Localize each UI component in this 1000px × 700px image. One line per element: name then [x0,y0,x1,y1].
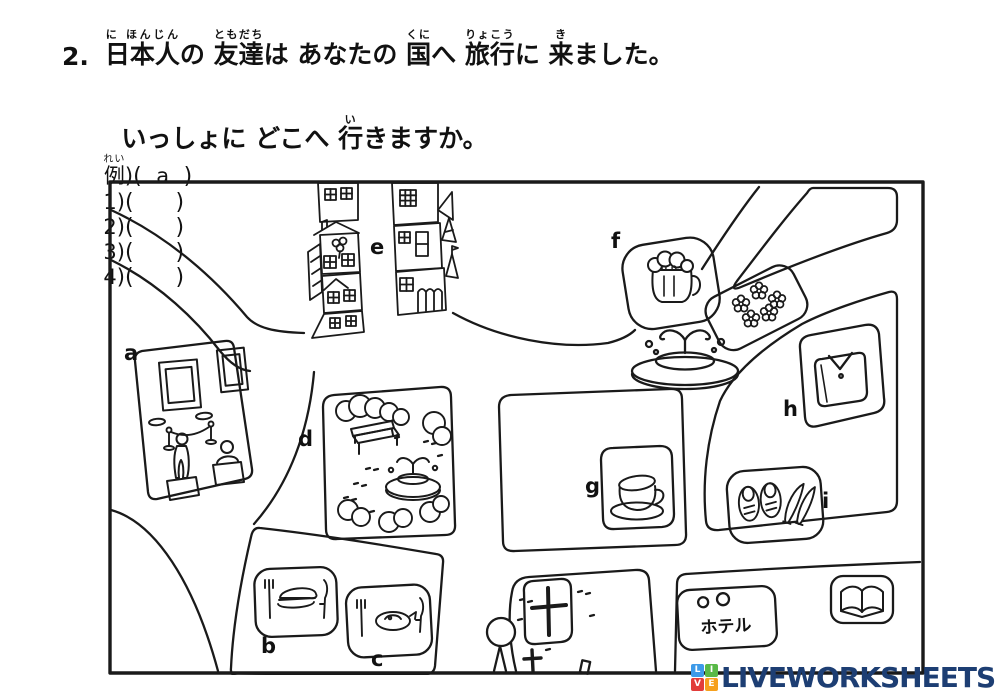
hotel-sign-text: ホテル [700,616,752,639]
shirt-icon [815,353,867,406]
map-block-right [705,292,897,544]
rope-barrier-icon [164,422,216,451]
question-text-1: 日本人に ほんじんの 友達ともだちは あなたの 国くにへ 旅行りょこうに 来きま… [105,28,674,71]
logo-tile-i: I [705,664,718,677]
bench-icon [351,421,399,454]
town-street-buildings [308,183,458,338]
book-icon [841,587,883,617]
fountain-icon [632,330,738,389]
town-map-image: a b c d e f g h i ホテル [108,180,925,675]
logo-tile-v: V [691,678,704,691]
map-label-f: f [611,229,621,253]
burger-plate-icon [265,580,327,618]
map-label-d: d [298,427,313,451]
coffee-cup-icon [611,474,663,520]
liveworksheets-logo[interactable]: L I V E LIVEWORKSHEETS [691,661,995,694]
park-block [323,387,455,539]
clothes-shop-sign [800,325,884,427]
book-shop-sign [831,576,893,623]
map-label-h: h [783,397,798,421]
shoes-icon [738,480,818,529]
question-number: 2. [62,42,89,71]
statue-icon [167,434,244,501]
cafe-sign [601,446,674,529]
bushes-icon [336,395,451,532]
flowers-icon [733,282,786,326]
question-line-1: 2. 日本人に ほんじんの 友達ともだちは あなたの 国くにへ 旅行りょこうに … [62,28,674,71]
picture-frame-icon [149,348,248,426]
park-fountain-icon [386,458,440,500]
liveworksheets-logo-icon: L I V E [691,664,718,691]
shoe-shop-sign [726,466,825,544]
restaurant-b-sign [254,567,338,638]
fish-plate-icon [357,598,423,636]
town-map-svg: a b c d e f g h i ホテル [108,180,925,675]
map-label-c: c [371,647,383,671]
map-label-a: a [124,341,138,365]
beer-mug-icon [648,252,700,303]
church-block [487,570,656,674]
restaurant-c-sign [345,584,433,658]
map-label-i: i [822,489,829,513]
liveworksheets-logo-text: LIVEWORKSHEETS [721,661,995,694]
map-label-e: e [370,235,384,259]
logo-tile-l: L [691,664,704,677]
logo-tile-e: E [705,678,718,691]
cafe-block [499,389,686,551]
map-label-g: g [585,474,600,498]
map-label-b: b [261,634,276,658]
